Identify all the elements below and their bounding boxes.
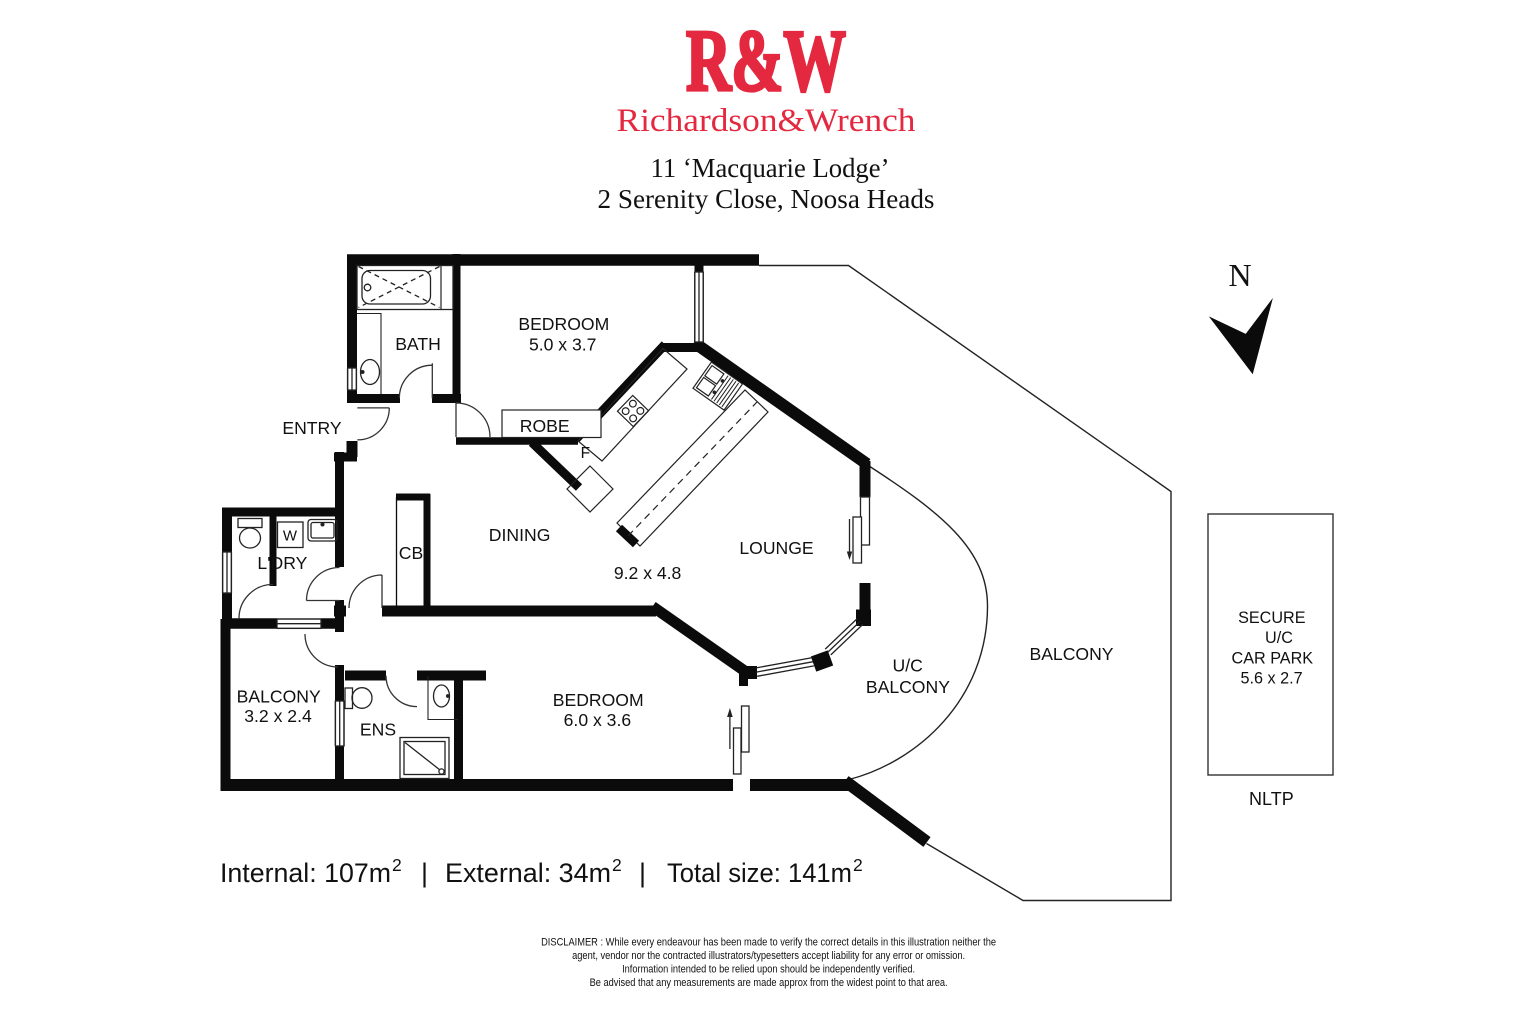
svg-text:5.6 x 2.7: 5.6 x 2.7 xyxy=(1241,669,1303,687)
svg-text:9.2 x 4.8: 9.2 x 4.8 xyxy=(614,563,682,583)
svg-text:BEDROOM: BEDROOM xyxy=(518,314,609,334)
svg-text:BALCONY: BALCONY xyxy=(866,677,950,697)
svg-text:CAR PARK: CAR PARK xyxy=(1232,649,1314,667)
svg-text:2: 2 xyxy=(392,855,402,875)
svg-text:ENS: ENS xyxy=(360,720,396,740)
svg-text:2: 2 xyxy=(853,855,863,875)
svg-text:Information intended to be rel: Information intended to be relied upon s… xyxy=(622,964,915,976)
svg-text:BALCONY: BALCONY xyxy=(1029,644,1113,664)
svg-text:ENTRY: ENTRY xyxy=(282,418,342,438)
svg-text:|: | xyxy=(421,858,428,888)
svg-text:External: 34m: External: 34m xyxy=(445,858,611,888)
svg-text:|: | xyxy=(639,858,646,888)
svg-text:DINING: DINING xyxy=(489,525,551,545)
svg-text:CB: CB xyxy=(399,543,423,563)
svg-text:BEDROOM: BEDROOM xyxy=(553,690,644,710)
svg-text:BALCONY: BALCONY xyxy=(237,687,321,707)
svg-text:Be advised that any measuremen: Be advised that any measurements are mad… xyxy=(590,977,948,989)
svg-text:LOUNGE: LOUNGE xyxy=(739,538,813,558)
svg-text:ROBE: ROBE xyxy=(520,416,570,436)
svg-text:2: 2 xyxy=(612,855,622,875)
svg-text:SECURE: SECURE xyxy=(1238,609,1306,627)
svg-text:Total size: 141m: Total size: 141m xyxy=(667,858,852,888)
svg-text:6.0 x 3.6: 6.0 x 3.6 xyxy=(564,710,632,730)
svg-text:N: N xyxy=(1228,257,1251,293)
svg-text:3.2 x 2.4: 3.2 x 2.4 xyxy=(244,706,312,726)
svg-text:U/C: U/C xyxy=(1265,629,1293,647)
svg-text:R&W: R&W xyxy=(686,13,846,110)
svg-text:F: F xyxy=(581,445,590,462)
svg-text:11 ‘Macquarie Lodge’: 11 ‘Macquarie Lodge’ xyxy=(651,153,890,183)
svg-text:U/C: U/C xyxy=(893,656,924,676)
svg-text:W: W xyxy=(283,528,298,545)
svg-text:agent, vendor nor the contract: agent, vendor nor the contracted illustr… xyxy=(572,950,965,962)
svg-text:Richardson&Wrench: Richardson&Wrench xyxy=(617,103,917,139)
svg-text:DISCLAIMER : While every endea: DISCLAIMER : While every endeavour has b… xyxy=(541,937,996,949)
svg-text:NLTP: NLTP xyxy=(1249,789,1294,809)
svg-text:5.0 x 3.7: 5.0 x 3.7 xyxy=(529,335,597,355)
svg-text:L'DRY: L'DRY xyxy=(257,553,307,573)
svg-text:Internal: 107m: Internal: 107m xyxy=(220,858,391,888)
svg-text:2 Serenity Close, Noosa Heads: 2 Serenity Close, Noosa Heads xyxy=(598,184,935,214)
svg-text:BATH: BATH xyxy=(395,334,441,354)
